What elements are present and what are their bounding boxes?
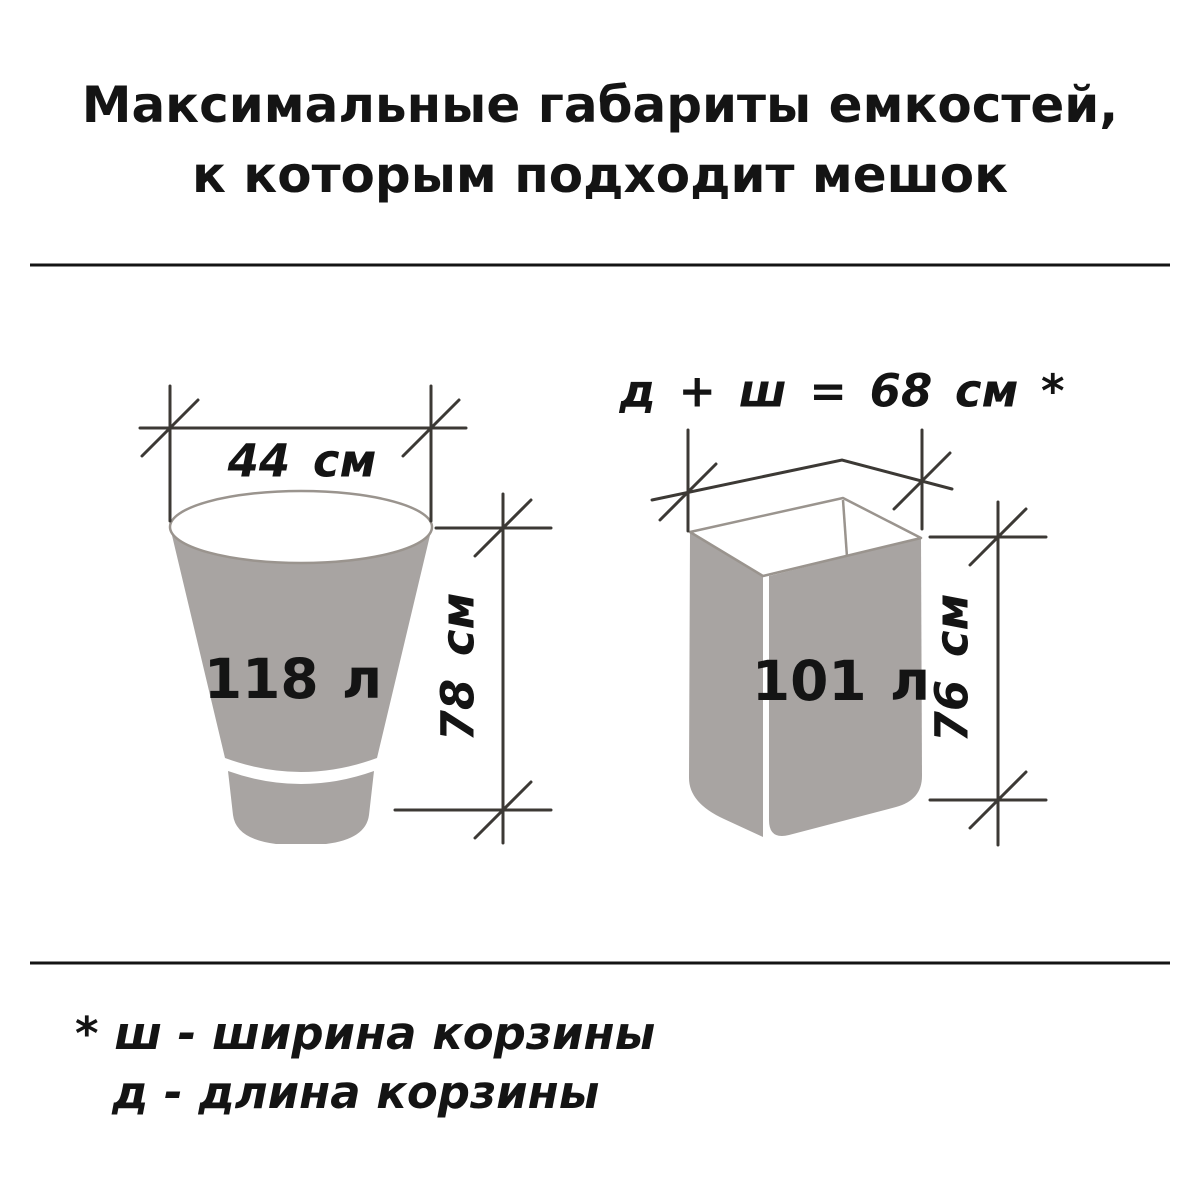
footnote: * ш - ширина корзины д - длина корзины — [75, 1004, 655, 1122]
bucket-opening — [170, 491, 432, 563]
footnote-line1: * ш - ширина корзины — [75, 1004, 655, 1063]
bucket-base — [228, 771, 374, 844]
basket-height-label: 76 см — [926, 594, 979, 743]
bucket-width-label: 44 см — [228, 435, 377, 488]
basket-volume-label: 101 л — [752, 649, 930, 713]
bucket-height-label: 78 см — [432, 593, 485, 742]
infographic-canvas: Максимальные габариты емкостей, к которы… — [0, 0, 1200, 1200]
basket-sum-label: д + ш = 68 см * — [619, 365, 1064, 418]
bucket-volume-label: 118 л — [204, 647, 382, 711]
page-title-line1: Максимальные габариты емкостей, — [0, 70, 1200, 140]
page-title-line2: к которым подходит мешок — [0, 140, 1200, 210]
footnote-line2: д - длина корзины — [112, 1063, 655, 1122]
page-title: Максимальные габариты емкостей, к которы… — [0, 70, 1200, 210]
